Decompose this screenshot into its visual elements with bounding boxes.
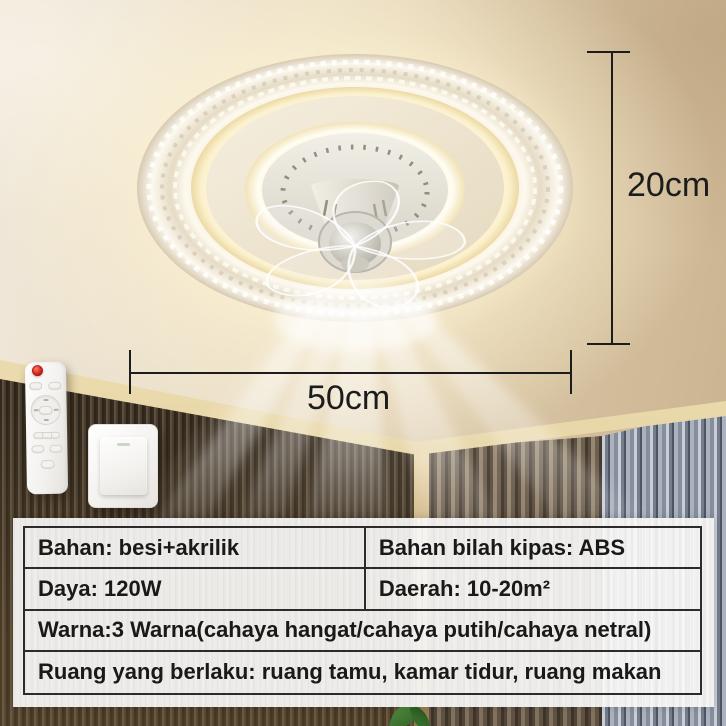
height-dimension-cap-bottom (587, 343, 630, 345)
remote-ok-button (39, 406, 53, 415)
spec-power: Daya: 120W (25, 569, 366, 608)
spec-colors: Warna:3 Warna(cahaya hangat/cahaya putih… (25, 611, 700, 650)
wall-switch-indicator (117, 443, 130, 446)
remote-speed-buttons (33, 432, 60, 439)
remote-button (29, 382, 42, 390)
diameter-dimension-cap-right (570, 350, 572, 394)
product-image: 20cm 50cm Bahan: besi+akrilik Bahan bila… (0, 0, 726, 726)
wall-switch (88, 424, 158, 508)
wall-switch-rocker (100, 437, 147, 495)
spec-material: Bahan: besi+akrilik (25, 528, 366, 567)
table-row: Ruang yang berlaku: ruang tamu, kamar ti… (25, 652, 700, 693)
remote-button (31, 445, 44, 453)
ceiling-fan-light (115, 28, 595, 358)
height-label: 20cm (627, 166, 710, 205)
spec-rooms: Ruang yang berlaku: ruang tamu, kamar ti… (25, 652, 700, 693)
spec-panel: Bahan: besi+akrilik Bahan bilah kipas: A… (13, 518, 714, 707)
table-row: Warna:3 Warna(cahaya hangat/cahaya putih… (25, 611, 700, 652)
table-row: Bahan: besi+akrilik Bahan bilah kipas: A… (25, 528, 700, 569)
remote-control (25, 362, 68, 495)
spec-blade-material: Bahan bilah kipas: ABS (366, 528, 700, 567)
diameter-dimension-cap-left (129, 350, 131, 394)
remote-button (41, 460, 55, 469)
remote-button (48, 382, 61, 390)
diameter-dimension-line (130, 372, 571, 374)
remote-power-button (32, 365, 43, 376)
diameter-label: 50cm (307, 379, 390, 418)
spec-table: Bahan: besi+akrilik Bahan bilah kipas: A… (23, 526, 702, 695)
spec-area: Daerah: 10-20m² (366, 569, 700, 608)
table-row: Daya: 120W Daerah: 10-20m² (25, 569, 700, 610)
height-dimension-cap-top (587, 51, 630, 53)
height-dimension-line (611, 52, 613, 344)
remote-button (49, 445, 62, 453)
